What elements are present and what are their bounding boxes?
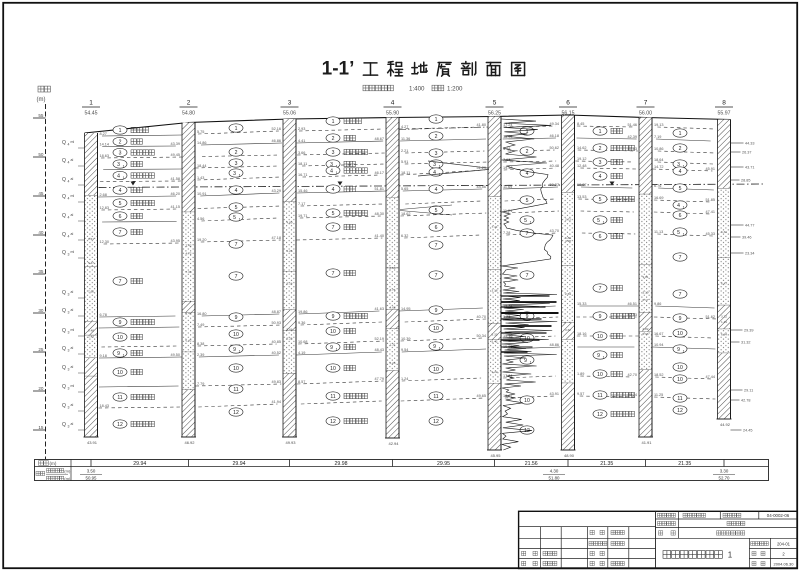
svg-text:4.56: 4.56 xyxy=(197,217,204,221)
svg-text:18.11: 18.11 xyxy=(298,162,307,166)
svg-text:4.30: 4.30 xyxy=(550,469,559,474)
svg-text:8.76: 8.76 xyxy=(389,288,395,292)
svg-text:2004.06.30: 2004.06.30 xyxy=(773,561,794,566)
svg-text:10: 10 xyxy=(433,367,439,373)
svg-text:18.44: 18.44 xyxy=(197,164,207,168)
svg-text:6.26: 6.26 xyxy=(389,361,395,365)
svg-text:51.46: 51.46 xyxy=(627,123,637,127)
svg-text:8.48: 8.48 xyxy=(88,328,94,332)
svg-text:ml: ml xyxy=(71,384,75,388)
svg-text:19.86: 19.86 xyxy=(298,310,308,314)
svg-text:3: 3 xyxy=(288,100,292,107)
svg-text:Q: Q xyxy=(62,213,66,219)
svg-text:46.92: 46.92 xyxy=(184,440,195,445)
svg-text:5: 5 xyxy=(524,218,527,224)
svg-text:Q: Q xyxy=(62,232,66,238)
svg-text:12: 12 xyxy=(597,412,603,418)
svg-text:49.45: 49.45 xyxy=(170,153,180,157)
svg-text:al: al xyxy=(71,177,74,181)
svg-text:(m): (m) xyxy=(37,97,46,103)
svg-text:1: 1 xyxy=(332,119,335,125)
svg-text:9: 9 xyxy=(597,353,600,359)
svg-text:1.89: 1.89 xyxy=(577,372,584,376)
svg-text:18.62: 18.62 xyxy=(401,212,411,216)
svg-text:1: 1 xyxy=(123,353,125,357)
svg-text:2: 2 xyxy=(187,100,191,107)
svg-text:3: 3 xyxy=(68,386,70,390)
svg-text:41.80: 41.80 xyxy=(476,123,486,127)
svg-text:2.82: 2.82 xyxy=(642,327,648,331)
svg-text:50: 50 xyxy=(38,152,44,157)
svg-text:al: al xyxy=(71,290,74,294)
svg-text:44.77: 44.77 xyxy=(745,224,755,228)
svg-text:5.65: 5.65 xyxy=(401,187,408,191)
svg-text:9: 9 xyxy=(433,344,436,350)
svg-text:8.27: 8.27 xyxy=(100,132,107,136)
svg-text:25: 25 xyxy=(38,347,44,352)
svg-text:49.65: 49.65 xyxy=(476,394,486,398)
svg-text:11: 11 xyxy=(677,396,682,402)
svg-text:204-01: 204-01 xyxy=(777,541,791,546)
svg-text:1: 1 xyxy=(123,164,125,168)
svg-text:52.19: 52.19 xyxy=(374,337,384,341)
svg-text:49.93: 49.93 xyxy=(285,440,296,445)
svg-text:9.22: 9.22 xyxy=(491,370,497,374)
svg-text:12.83: 12.83 xyxy=(100,206,110,210)
svg-text:52.16: 52.16 xyxy=(271,127,281,131)
svg-text:10: 10 xyxy=(117,370,123,376)
svg-text:4.89: 4.89 xyxy=(286,221,292,225)
svg-text:Q: Q xyxy=(62,194,66,200)
svg-text:12: 12 xyxy=(433,419,439,425)
svg-text:2.21: 2.21 xyxy=(401,149,408,153)
svg-text:2: 2 xyxy=(332,136,335,142)
svg-text:8.13: 8.13 xyxy=(389,266,395,270)
svg-text:Q: Q xyxy=(62,177,66,183)
svg-text:5: 5 xyxy=(435,208,438,214)
svg-text:1.24: 1.24 xyxy=(401,377,408,381)
svg-text:11: 11 xyxy=(233,387,238,393)
svg-text:48.90: 48.90 xyxy=(564,453,575,458)
svg-text:7: 7 xyxy=(435,273,438,279)
svg-text:2: 2 xyxy=(679,146,682,152)
svg-text:52.70: 52.70 xyxy=(719,476,731,481)
svg-text:10.91: 10.91 xyxy=(197,192,207,196)
svg-text:12: 12 xyxy=(233,410,239,416)
svg-text:5: 5 xyxy=(526,198,529,204)
svg-text:10: 10 xyxy=(597,334,603,340)
svg-text:4: 4 xyxy=(332,187,335,193)
svg-text:51.80: 51.80 xyxy=(549,476,561,481)
svg-text:7.19: 7.19 xyxy=(654,135,661,139)
svg-text:9: 9 xyxy=(119,320,122,326)
svg-text:(m): (m) xyxy=(64,468,71,473)
svg-text:3: 3 xyxy=(68,330,70,334)
svg-text:2.54: 2.54 xyxy=(565,292,571,296)
svg-text:9: 9 xyxy=(524,358,527,364)
svg-text:51.81: 51.81 xyxy=(374,187,384,191)
svg-text:3.19: 3.19 xyxy=(642,291,648,295)
svg-text:7: 7 xyxy=(435,243,438,249)
svg-text:40: 40 xyxy=(38,230,44,235)
svg-text:Q: Q xyxy=(62,384,66,390)
svg-text:19.71: 19.71 xyxy=(298,214,308,218)
svg-text:47.44: 47.44 xyxy=(705,375,715,379)
svg-text:31.32: 31.32 xyxy=(741,341,751,345)
svg-text:9: 9 xyxy=(117,351,120,357)
svg-text:1: 1 xyxy=(439,346,441,350)
svg-text:al: al xyxy=(71,422,74,426)
svg-text:10: 10 xyxy=(677,331,683,337)
svg-text:2: 2 xyxy=(526,149,529,155)
svg-text:19.13: 19.13 xyxy=(654,123,664,127)
svg-text:1:200: 1:200 xyxy=(447,86,463,93)
svg-text:50.95: 50.95 xyxy=(86,476,98,481)
svg-text:4: 4 xyxy=(435,187,438,193)
svg-text:20: 20 xyxy=(38,386,44,391)
svg-text:7.28: 7.28 xyxy=(503,231,510,235)
svg-text:1.31: 1.31 xyxy=(389,343,395,347)
svg-text:7: 7 xyxy=(235,242,238,248)
svg-text:6: 6 xyxy=(435,225,438,231)
svg-text:3: 3 xyxy=(117,162,120,168)
svg-text:2: 2 xyxy=(435,134,438,140)
svg-text:6.32: 6.32 xyxy=(401,234,408,238)
svg-text:(m): (m) xyxy=(50,461,57,466)
svg-text:43.91: 43.91 xyxy=(87,440,98,445)
svg-text:44.33: 44.33 xyxy=(745,142,755,146)
svg-text:4.98: 4.98 xyxy=(565,239,571,243)
svg-text:51.62: 51.62 xyxy=(705,315,715,319)
svg-text:6.76: 6.76 xyxy=(654,184,661,188)
svg-text:10: 10 xyxy=(117,335,123,341)
svg-text:3: 3 xyxy=(235,161,238,167)
svg-text:15: 15 xyxy=(38,425,44,430)
svg-text:46.86: 46.86 xyxy=(271,139,281,143)
svg-text:16.69: 16.69 xyxy=(654,196,664,200)
svg-text:16.67: 16.67 xyxy=(654,332,664,336)
svg-text:54.80: 54.80 xyxy=(182,111,195,117)
svg-text:1: 1 xyxy=(603,355,605,359)
svg-text:43.39: 43.39 xyxy=(170,142,180,146)
svg-text:6: 6 xyxy=(679,213,682,219)
svg-text:1: 1 xyxy=(123,176,125,180)
svg-text:5: 5 xyxy=(599,197,602,203)
svg-text:4.27: 4.27 xyxy=(401,125,408,129)
svg-text:9: 9 xyxy=(233,347,236,353)
svg-text:14.86: 14.86 xyxy=(197,141,207,145)
svg-text:10.86: 10.86 xyxy=(654,147,664,151)
svg-text:3: 3 xyxy=(68,310,70,314)
svg-text:55.90: 55.90 xyxy=(386,111,399,117)
svg-text:9.81: 9.81 xyxy=(642,275,648,279)
svg-text:55: 55 xyxy=(38,113,44,118)
svg-text:11.36: 11.36 xyxy=(401,137,410,141)
svg-text:5: 5 xyxy=(235,205,238,211)
svg-text:45.33: 45.33 xyxy=(705,232,715,236)
svg-text:26.37: 26.37 xyxy=(742,151,752,155)
svg-text:18.63: 18.63 xyxy=(100,154,110,158)
svg-text:44.56: 44.56 xyxy=(476,185,486,189)
svg-text:4: 4 xyxy=(330,168,333,174)
svg-text:3: 3 xyxy=(332,150,335,156)
svg-text:9: 9 xyxy=(677,347,680,353)
svg-text:30: 30 xyxy=(38,308,44,313)
svg-text:47.41: 47.41 xyxy=(705,210,715,214)
svg-text:41.94: 41.94 xyxy=(271,400,281,404)
svg-text:6: 6 xyxy=(119,214,122,220)
svg-text:49.50: 49.50 xyxy=(170,353,180,357)
svg-text:8: 8 xyxy=(722,100,726,107)
svg-text:18.52: 18.52 xyxy=(654,373,664,377)
svg-text:5.66: 5.66 xyxy=(286,328,292,332)
svg-text:ml: ml xyxy=(71,140,75,144)
svg-text:14.62: 14.62 xyxy=(577,146,587,150)
svg-text:18.64: 18.64 xyxy=(654,158,664,162)
svg-text:6.78: 6.78 xyxy=(100,313,107,317)
svg-text:1: 1 xyxy=(235,126,238,132)
svg-text:5.96: 5.96 xyxy=(642,332,648,336)
svg-text:9.18: 9.18 xyxy=(100,354,107,358)
svg-text:11: 11 xyxy=(330,394,335,400)
svg-text:4.26: 4.26 xyxy=(286,249,292,253)
svg-text:14.14: 14.14 xyxy=(100,142,110,146)
svg-text:1: 1 xyxy=(679,131,682,137)
svg-text:43.71: 43.71 xyxy=(745,166,755,170)
svg-text:04-0002-06: 04-0002-06 xyxy=(767,513,790,518)
svg-text:46.17: 46.17 xyxy=(374,171,384,175)
svg-text:40.85: 40.85 xyxy=(271,340,281,344)
svg-text:5.47: 5.47 xyxy=(88,261,94,265)
svg-text:12: 12 xyxy=(117,422,123,428)
svg-text:11: 11 xyxy=(433,394,438,400)
svg-text:7: 7 xyxy=(119,230,122,236)
svg-text:Q: Q xyxy=(62,308,66,314)
svg-text:10: 10 xyxy=(677,365,683,371)
svg-text:4: 4 xyxy=(677,203,680,209)
svg-text:21.35: 21.35 xyxy=(678,461,691,467)
svg-text:Q: Q xyxy=(62,403,66,409)
svg-text:3: 3 xyxy=(433,162,436,168)
svg-text:1: 1 xyxy=(530,220,532,224)
svg-text:2: 2 xyxy=(599,146,602,152)
svg-text:10.39: 10.39 xyxy=(401,337,411,341)
svg-text:Q: Q xyxy=(62,365,66,371)
svg-text:ml: ml xyxy=(71,194,75,198)
svg-text:8.57: 8.57 xyxy=(298,380,305,384)
svg-text:6: 6 xyxy=(566,100,570,107)
svg-text:7: 7 xyxy=(679,292,682,298)
svg-text:19.20: 19.20 xyxy=(197,238,207,242)
svg-text:4: 4 xyxy=(119,188,122,194)
svg-text:4: 4 xyxy=(68,142,70,146)
svg-text:2.72: 2.72 xyxy=(565,218,571,222)
svg-text:39.46: 39.46 xyxy=(742,236,752,240)
svg-text:9.86: 9.86 xyxy=(654,302,661,306)
svg-text:4: 4 xyxy=(68,234,70,238)
svg-text:2.93: 2.93 xyxy=(298,127,305,131)
svg-text:1: 1 xyxy=(603,220,605,224)
svg-text:3: 3 xyxy=(119,150,122,156)
svg-text:2.39: 2.39 xyxy=(197,353,204,357)
svg-text:2: 2 xyxy=(119,139,122,145)
svg-text:al: al xyxy=(71,346,74,350)
svg-text:5: 5 xyxy=(493,100,497,107)
svg-text:43.91: 43.91 xyxy=(549,392,559,396)
svg-text:11.25: 11.25 xyxy=(654,393,663,397)
svg-text:2.42: 2.42 xyxy=(185,244,191,248)
svg-text:3: 3 xyxy=(435,151,438,157)
svg-text:7: 7 xyxy=(332,271,335,277)
svg-text:4.68: 4.68 xyxy=(389,306,395,310)
svg-text:4.19: 4.19 xyxy=(298,351,305,355)
svg-text:29.39: 29.39 xyxy=(744,329,754,333)
svg-text:1: 1 xyxy=(435,117,438,123)
svg-text:3.22: 3.22 xyxy=(721,314,727,318)
svg-text:al: al xyxy=(71,308,74,312)
svg-text:18.11: 18.11 xyxy=(401,171,410,175)
svg-text:48.67: 48.67 xyxy=(374,137,384,141)
svg-text:10: 10 xyxy=(233,332,239,338)
svg-text:18.16: 18.16 xyxy=(577,332,587,336)
svg-text:29.94: 29.94 xyxy=(133,461,146,467)
svg-text:9: 9 xyxy=(330,345,333,351)
svg-text:3: 3 xyxy=(233,171,236,177)
svg-text:4: 4 xyxy=(235,188,238,194)
svg-text:49.83: 49.83 xyxy=(271,380,281,384)
svg-text:3: 3 xyxy=(68,424,70,428)
svg-text:55.97: 55.97 xyxy=(718,111,731,117)
svg-text:45.95: 45.95 xyxy=(490,453,501,458)
svg-text:45: 45 xyxy=(38,191,44,196)
svg-text:54.45: 54.45 xyxy=(85,111,98,117)
svg-text:1: 1 xyxy=(683,349,685,353)
svg-text:10: 10 xyxy=(330,366,336,372)
svg-text:41.58: 41.58 xyxy=(170,177,180,181)
svg-text:3: 3 xyxy=(68,405,70,409)
svg-text:56.25: 56.25 xyxy=(488,111,501,117)
svg-text:46.20: 46.20 xyxy=(170,192,180,196)
svg-text:29.11: 29.11 xyxy=(744,389,753,393)
svg-text:4: 4 xyxy=(68,160,70,164)
svg-text:16.71: 16.71 xyxy=(298,173,308,177)
svg-text:al: al xyxy=(71,403,74,407)
svg-text:al: al xyxy=(71,158,74,162)
svg-text:9.41: 9.41 xyxy=(88,237,94,241)
svg-text:10: 10 xyxy=(677,377,683,383)
svg-text:15.33: 15.33 xyxy=(577,302,587,306)
svg-text:23.34: 23.34 xyxy=(745,252,755,256)
svg-text:42.70: 42.70 xyxy=(627,373,637,377)
svg-text:43.70: 43.70 xyxy=(549,229,559,233)
svg-text:Q: Q xyxy=(62,346,66,352)
svg-text:41.91: 41.91 xyxy=(641,440,652,445)
svg-text:Q: Q xyxy=(62,250,66,256)
svg-text:3: 3 xyxy=(68,348,70,352)
svg-text:29.95: 29.95 xyxy=(437,461,450,467)
svg-text:1: 1 xyxy=(239,349,241,353)
svg-text:50.62: 50.62 xyxy=(549,146,559,150)
svg-text:9: 9 xyxy=(599,314,602,320)
svg-text:45.91: 45.91 xyxy=(705,167,715,171)
svg-text:1: 1 xyxy=(439,164,441,168)
svg-text:3.66: 3.66 xyxy=(298,151,305,155)
svg-text:24.45: 24.45 xyxy=(743,429,753,433)
svg-text:4: 4 xyxy=(679,169,682,175)
svg-text:7: 7 xyxy=(332,225,335,231)
svg-text:5: 5 xyxy=(233,215,236,221)
svg-text:7.33: 7.33 xyxy=(185,270,191,274)
svg-text:50.37: 50.37 xyxy=(549,183,559,187)
svg-text:1: 1 xyxy=(599,129,602,135)
svg-text:6: 6 xyxy=(599,234,602,240)
svg-text:7: 7 xyxy=(235,274,238,280)
svg-text:21.35: 21.35 xyxy=(600,461,613,467)
svg-text:7.17: 7.17 xyxy=(298,202,305,206)
svg-text:1: 1 xyxy=(683,232,685,236)
svg-text:al: al xyxy=(71,365,74,369)
svg-text:9.26: 9.26 xyxy=(286,336,292,340)
svg-text:10: 10 xyxy=(330,329,336,335)
svg-text:4: 4 xyxy=(68,215,70,219)
svg-text:10: 10 xyxy=(233,366,239,372)
svg-text:6.47: 6.47 xyxy=(721,282,727,286)
svg-text:1: 1 xyxy=(683,205,685,209)
svg-text:(m): (m) xyxy=(64,476,71,481)
svg-text:56.00: 56.00 xyxy=(639,111,652,117)
svg-text:42.78: 42.78 xyxy=(741,399,751,403)
svg-text:11: 11 xyxy=(597,393,602,399)
svg-text:42.39: 42.39 xyxy=(627,135,637,139)
svg-text:21.56: 21.56 xyxy=(525,461,538,467)
svg-text:Q: Q xyxy=(62,328,66,334)
svg-text:1: 1 xyxy=(336,347,338,351)
svg-text:2: 2 xyxy=(235,150,238,156)
svg-text:7: 7 xyxy=(679,255,682,261)
svg-text:10: 10 xyxy=(597,372,603,378)
svg-text:al: al xyxy=(71,213,74,217)
svg-text:44.92: 44.92 xyxy=(720,422,731,427)
svg-text:3.30: 3.30 xyxy=(720,469,729,474)
svg-text:12.48: 12.48 xyxy=(577,164,587,168)
svg-text:3.62: 3.62 xyxy=(565,328,571,332)
svg-text:1: 1 xyxy=(239,173,241,177)
svg-text:43.29: 43.29 xyxy=(271,189,281,193)
svg-text:28.85: 28.85 xyxy=(741,179,751,183)
svg-text:10.94: 10.94 xyxy=(654,343,664,347)
svg-text:40.52: 40.52 xyxy=(271,351,281,355)
svg-text:8.45: 8.45 xyxy=(577,122,584,126)
svg-text:50.93: 50.93 xyxy=(271,321,281,325)
svg-text:16.80: 16.80 xyxy=(197,312,207,316)
svg-text:18.43: 18.43 xyxy=(100,404,110,408)
svg-text:40.48: 40.48 xyxy=(549,164,559,168)
svg-text:7.79: 7.79 xyxy=(197,382,204,386)
svg-text:1: 1 xyxy=(89,100,93,107)
svg-text:3: 3 xyxy=(68,252,70,256)
svg-text:4: 4 xyxy=(117,173,120,179)
svg-text:1: 1 xyxy=(728,551,733,560)
svg-text:5: 5 xyxy=(119,201,122,207)
svg-text:8.38: 8.38 xyxy=(197,342,204,346)
svg-text:7: 7 xyxy=(644,100,648,107)
svg-text:48.30: 48.30 xyxy=(374,212,384,216)
svg-text:9.54: 9.54 xyxy=(401,348,408,352)
svg-text:47.79: 47.79 xyxy=(374,377,384,381)
svg-text:1: 1 xyxy=(119,128,122,134)
svg-text:50.34: 50.34 xyxy=(476,334,486,338)
svg-text:Q: Q xyxy=(62,140,66,146)
